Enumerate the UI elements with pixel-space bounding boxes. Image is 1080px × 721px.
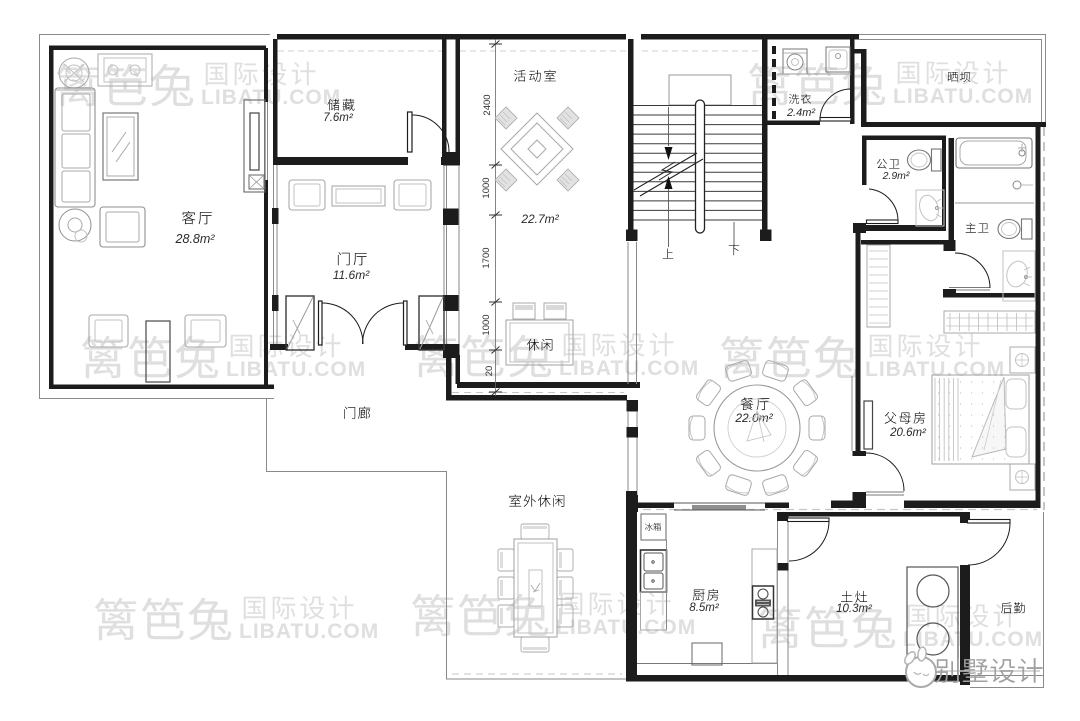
svg-text:22.7m²: 22.7m²	[520, 212, 559, 226]
svg-text:1700: 1700	[481, 247, 492, 268]
svg-text:2.4m²: 2.4m²	[786, 107, 815, 119]
svg-text:10.3m²: 10.3m²	[836, 603, 873, 615]
svg-text:7.6m²: 7.6m²	[323, 112, 354, 124]
svg-text:20: 20	[484, 366, 495, 377]
svg-text:1000: 1000	[481, 177, 492, 198]
svg-text:28.8m²: 28.8m²	[175, 232, 216, 246]
svg-text:2.9m²: 2.9m²	[882, 170, 910, 182]
svg-text:20.6m²: 20.6m²	[889, 427, 927, 439]
svg-text:22.0m²: 22.0m²	[734, 411, 773, 425]
svg-text:1000: 1000	[481, 314, 492, 335]
svg-text:2400: 2400	[482, 94, 493, 115]
svg-text:8.5m²: 8.5m²	[689, 602, 720, 614]
svg-text:11.6m²: 11.6m²	[333, 268, 370, 282]
